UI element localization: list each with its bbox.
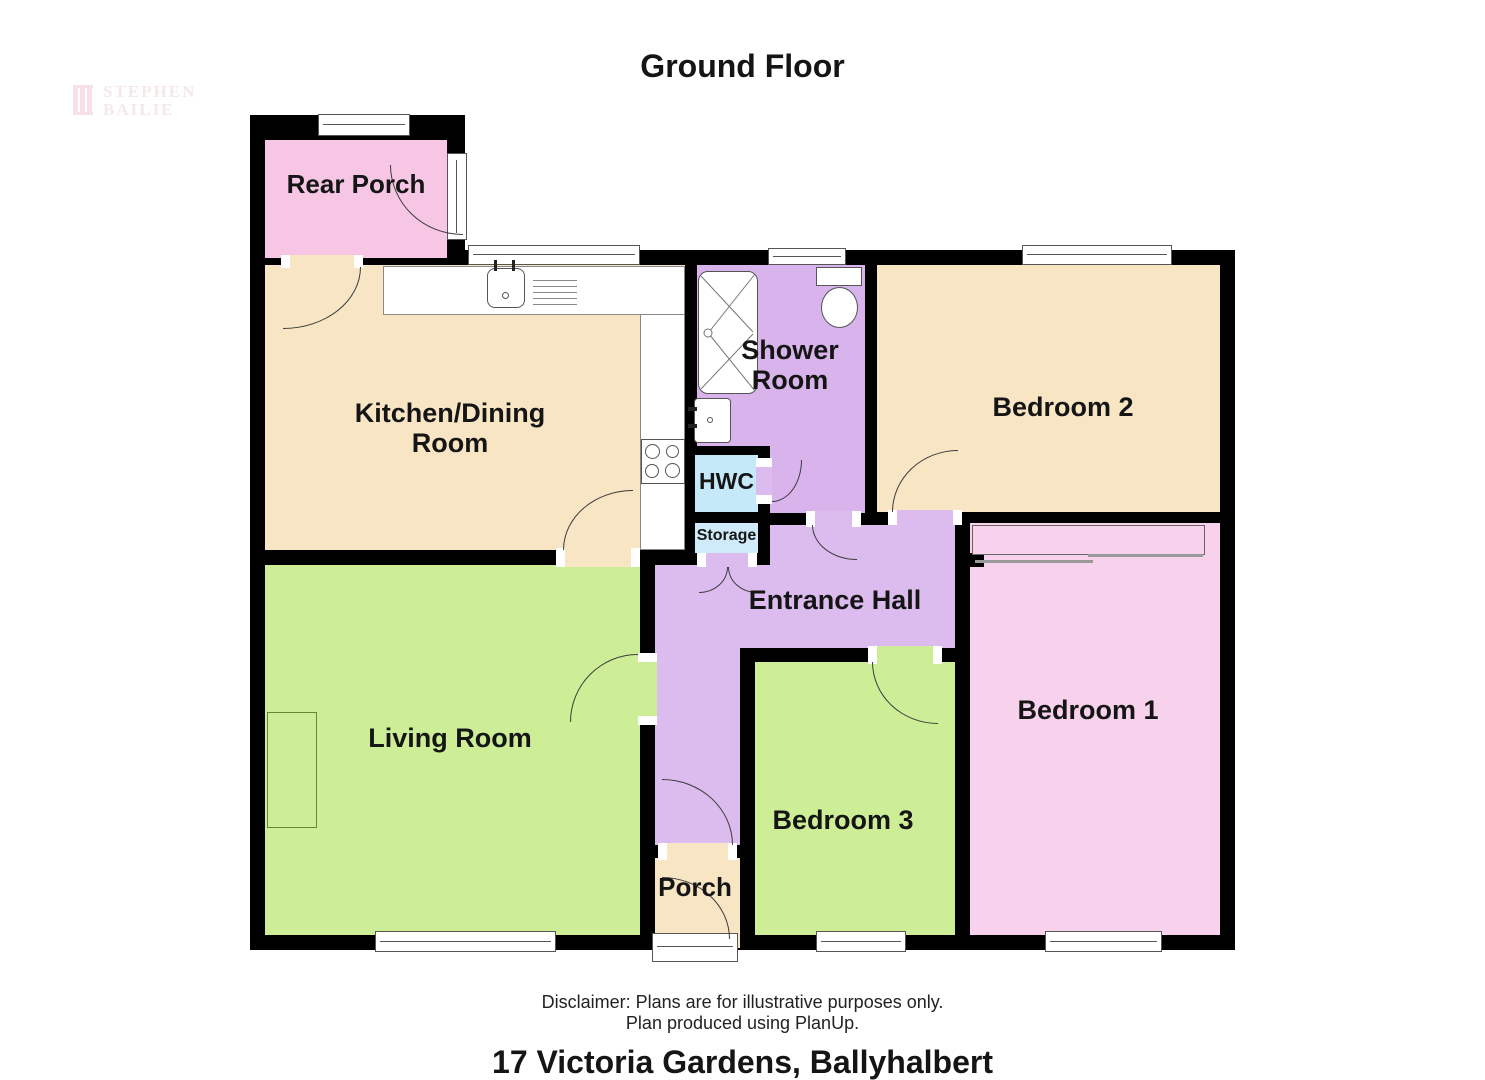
opening-storage-hall	[697, 553, 757, 567]
kitchen-counter-side	[640, 314, 685, 550]
columns-logo-icon	[73, 85, 99, 115]
room-label-bedroom-3: Bedroom 3	[718, 805, 968, 835]
wall-bedroom3-top-a	[740, 648, 872, 662]
tap-icon	[512, 260, 515, 271]
floor-plan-page: STEPHEN BAILIE Ground Floor	[0, 0, 1485, 1080]
window-bedroom-1	[1045, 931, 1162, 952]
room-label-shower-room: Shower Room	[700, 335, 880, 395]
wall-living-right-lower	[640, 723, 655, 948]
drainer-icon	[533, 275, 577, 306]
watermark-text: STEPHEN BAILIE	[103, 83, 196, 119]
room-bedroom-1	[970, 523, 1220, 935]
room-label-bedroom-1: Bedroom 1	[960, 695, 1216, 725]
kitchen-sink-icon	[487, 268, 525, 308]
fireplace-icon	[267, 712, 317, 828]
wardrobe-sliding-door-icon	[975, 560, 1093, 563]
hob-ring-icon	[645, 444, 660, 459]
opening-hall-living	[638, 653, 657, 725]
window-rear-porch	[318, 114, 410, 136]
wall-kitchen-bottom-left	[265, 550, 558, 565]
page-title: Ground Floor	[0, 48, 1485, 85]
opening-hall-kitchen	[556, 548, 640, 567]
agency-watermark: STEPHEN BAILIE	[73, 83, 196, 119]
property-address: 17 Victoria Gardens, Ballyhalbert	[0, 1044, 1485, 1080]
wall-shower-corr-left	[770, 513, 810, 525]
room-label-rear-porch: Rear Porch	[265, 170, 447, 199]
room-label-hwc: HWC	[695, 469, 758, 495]
room-label-storage: Storage	[695, 527, 758, 545]
room-label-bedroom-2: Bedroom 2	[938, 392, 1188, 422]
wardrobe-sliding-door-icon	[1088, 554, 1203, 557]
basin-drain-icon	[707, 417, 713, 423]
hob-ring-icon	[665, 463, 680, 478]
window-living-room	[375, 931, 556, 952]
tap-icon	[494, 260, 497, 271]
wall-bedroom1-left	[955, 523, 970, 935]
opening-hall-bedroom2	[888, 510, 962, 525]
window-shower-room	[768, 248, 846, 265]
wall-living-right-upper	[640, 550, 655, 655]
tap-icon	[688, 407, 697, 411]
disclaimer-line-1: Disclaimer: Plans are for illustrative p…	[0, 992, 1485, 1013]
hob-ring-icon	[645, 464, 659, 478]
opening-hall-porch	[658, 843, 737, 860]
hob-ring-icon	[666, 445, 679, 458]
sink-drain-icon	[502, 292, 509, 299]
tap-icon	[688, 424, 697, 428]
opening-hwc-hall	[756, 458, 772, 504]
toilet-cistern-icon	[816, 267, 862, 286]
room-hall-upper	[770, 525, 955, 565]
window-bedroom-3	[816, 931, 906, 952]
window-bedroom-2	[1022, 245, 1172, 265]
disclaimer-line-2: Plan produced using PlanUp.	[0, 1013, 1485, 1034]
room-label-kitchen-dining: Kitchen/Dining Room	[330, 398, 570, 458]
room-label-porch: Porch	[648, 873, 742, 902]
room-label-living-room: Living Room	[350, 723, 550, 753]
wardrobe-icon	[972, 525, 1205, 555]
wall-hwc-storage	[690, 512, 770, 523]
room-label-entrance-hall: Entrance Hall	[735, 585, 935, 615]
toilet-bowl-icon	[821, 287, 858, 328]
